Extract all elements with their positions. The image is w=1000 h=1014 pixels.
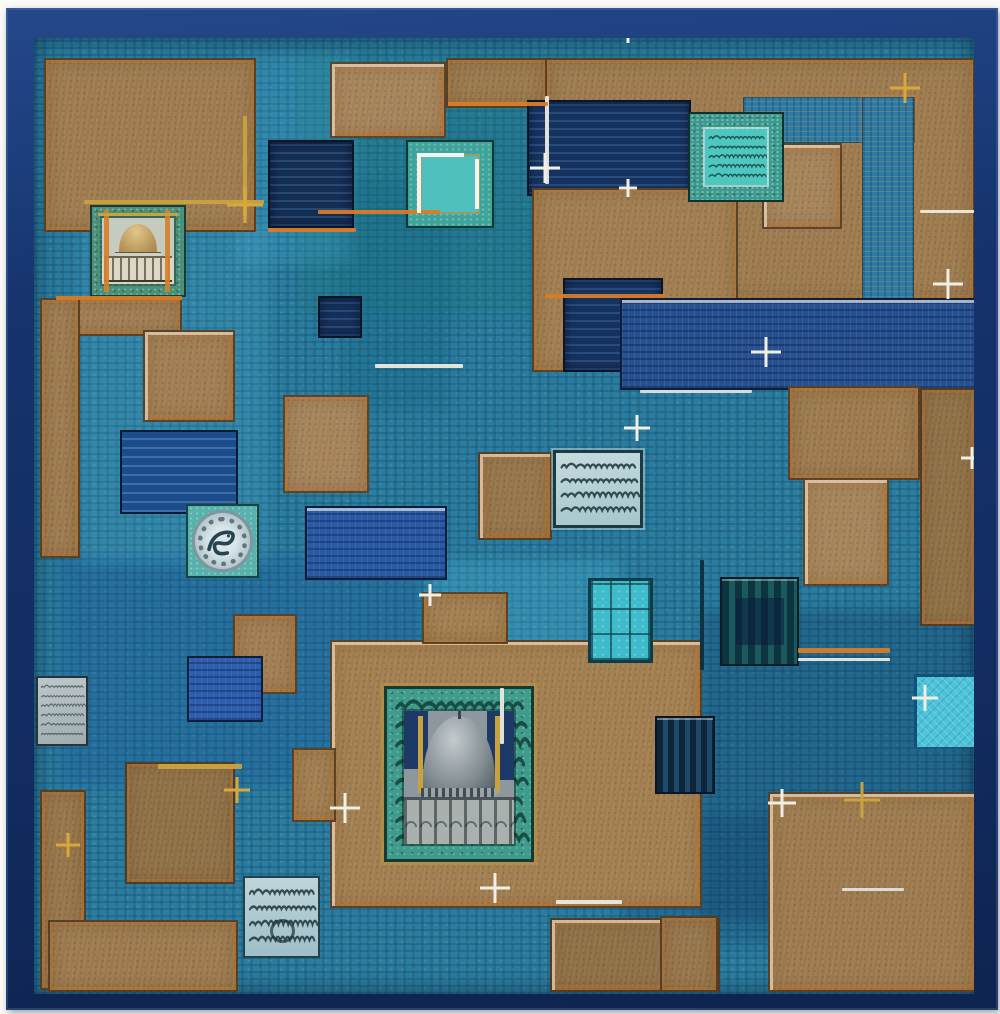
- paint-stroke: [56, 296, 182, 300]
- calligraphy-script: [556, 453, 640, 525]
- arcade: [404, 797, 513, 844]
- white-stroke: [475, 159, 479, 209]
- paint-stroke: [798, 648, 890, 653]
- tile-center: [705, 129, 768, 186]
- gold-bar: [418, 716, 423, 793]
- paint-stroke: [500, 688, 504, 744]
- mosque-photo: [102, 218, 174, 285]
- tan-mid-center: [478, 452, 552, 540]
- orange-bar: [165, 210, 170, 293]
- navy-small-square: [318, 296, 362, 338]
- paint-stroke: [700, 560, 704, 670]
- sparkle-cross: [624, 415, 650, 441]
- sparkle-cross: [530, 153, 560, 183]
- paint-stroke: [375, 364, 463, 368]
- tan-block-top-a: [330, 62, 446, 138]
- tan-field-bottom-right: [768, 792, 974, 992]
- calligraphy-panel-center: [553, 450, 643, 528]
- deepblue-tile-left: [120, 430, 238, 514]
- sparkle-cross: [56, 833, 80, 857]
- turquoise-tile-white-edges: [406, 140, 494, 228]
- navy-tile-upper-left: [268, 140, 354, 228]
- orange-bar: [104, 210, 109, 293]
- painting-photo: [0, 0, 1000, 1014]
- sparkle-cross: [961, 447, 974, 469]
- sparkle-cross: [912, 685, 938, 711]
- paint-stroke: [798, 658, 890, 661]
- gold-line: [98, 213, 177, 216]
- white-stroke: [417, 153, 421, 213]
- tan-bottom-left-row: [48, 920, 238, 992]
- mosque-vignette-gold: [90, 205, 186, 297]
- paint-stroke: [318, 210, 440, 214]
- turquoise-calligraphy-tile: [688, 112, 784, 202]
- tan-left-square-bottom: [125, 762, 235, 884]
- calligraphy-script: [705, 129, 768, 186]
- white-stroke: [417, 153, 464, 157]
- tan-left-column: [40, 298, 80, 558]
- tan-mid-left: [283, 395, 369, 493]
- paint-stroke: [268, 228, 356, 232]
- paint-stroke: [448, 102, 548, 106]
- paint-stroke: [158, 764, 242, 769]
- calligraphy-script: [38, 678, 86, 744]
- mosque-photo: [404, 711, 513, 844]
- sparkle-cross: [419, 584, 441, 606]
- royal-tile-center-left: [305, 506, 447, 580]
- tan-bottom-small: [660, 916, 718, 992]
- paint-stroke: [545, 294, 665, 298]
- mosque-vignette-silver: [384, 686, 534, 862]
- dome-finial: [458, 711, 461, 719]
- mosque-facade: [104, 256, 173, 281]
- plate-bird-tile: [186, 504, 259, 578]
- sparkle-cross: [768, 789, 796, 817]
- royal-tile-lower-left: [187, 656, 263, 722]
- sparkle-cross: [751, 337, 781, 367]
- signature-seal: [270, 919, 295, 944]
- tile-center: [420, 154, 481, 215]
- silver-dome: [423, 716, 495, 796]
- tan-left-upper: [143, 330, 235, 422]
- sparkle-cross: [933, 269, 963, 299]
- paint-stroke: [556, 900, 622, 904]
- tan-right-mid: [788, 386, 920, 480]
- tan-right-inset: [803, 478, 889, 586]
- sparkle-cross: [480, 873, 510, 903]
- sparkle-cross: [890, 73, 920, 103]
- painting-canvas: [34, 38, 974, 994]
- navy-striped-tile: [655, 716, 715, 794]
- paint-stroke: [640, 390, 752, 393]
- blue-band-top-right-v: [862, 97, 914, 303]
- gold-dome: [119, 224, 158, 255]
- turquoise-grid-tile: [588, 578, 653, 663]
- calligraphy-panel-silver: [36, 676, 88, 746]
- calligraphy-panel-bottom-left: [243, 876, 320, 958]
- paint-stroke: [920, 210, 974, 213]
- plate-script-ring: [198, 517, 246, 566]
- sparkle-cross: [227, 187, 263, 223]
- gold-bar: [495, 716, 500, 793]
- sparkle-cross: [224, 777, 250, 803]
- sparkle-cross: [619, 179, 637, 197]
- paint-stroke: [842, 888, 904, 891]
- tan-right-column: [920, 388, 974, 626]
- dark-striped-tile: [720, 577, 799, 666]
- royal-band-right: [620, 298, 974, 390]
- sparkle-cross: [330, 793, 360, 823]
- calligraphy-script: [245, 878, 318, 956]
- sparkle-cross: [844, 782, 880, 818]
- sparkle-cross: [620, 38, 636, 43]
